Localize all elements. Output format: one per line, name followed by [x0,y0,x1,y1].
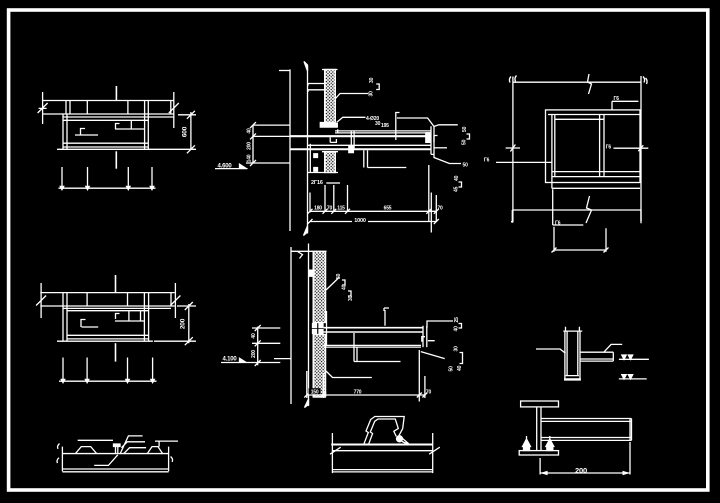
svg-text:40: 40 [247,128,253,134]
svg-text:1000: 1000 [354,218,366,224]
svg-text:30: 30 [369,91,375,97]
svg-text:180: 180 [314,206,322,212]
svg-text:200: 200 [251,350,257,358]
svg-text:2Γ16: 2Γ16 [311,180,323,186]
svg-text:40: 40 [342,284,348,290]
svg-text:30: 30 [375,121,381,127]
svg-text:Γ6: Γ6 [606,145,612,151]
svg-text:770: 770 [354,389,362,395]
svg-text:150: 150 [311,389,319,395]
svg-text:200: 200 [575,466,587,475]
svg-text:600: 600 [182,126,189,137]
svg-text:115: 115 [337,206,345,212]
svg-text:70: 70 [327,206,333,212]
svg-text:40: 40 [457,365,463,371]
svg-text:4.100: 4.100 [223,357,238,363]
svg-text:655: 655 [384,206,392,212]
svg-text:Γ6: Γ6 [484,158,490,164]
svg-text:30: 30 [348,295,354,301]
svg-text:200: 200 [247,142,253,150]
svg-text:50: 50 [463,162,469,168]
svg-text:50: 50 [336,273,342,279]
svg-text:200: 200 [180,318,187,329]
svg-text:30: 30 [454,346,460,352]
svg-text:70: 70 [437,206,443,212]
svg-text:40: 40 [454,326,460,332]
svg-text:50: 50 [449,366,455,372]
svg-text:40: 40 [251,333,257,339]
svg-text:140: 140 [247,154,253,162]
svg-text:50: 50 [462,139,468,145]
svg-text:25: 25 [454,317,460,323]
svg-text:195: 195 [381,123,389,129]
svg-text:70: 70 [426,389,432,395]
svg-text:50: 50 [462,126,468,132]
svg-text:45: 45 [454,186,460,192]
svg-text:30: 30 [369,77,375,83]
svg-text:40: 40 [454,175,460,181]
